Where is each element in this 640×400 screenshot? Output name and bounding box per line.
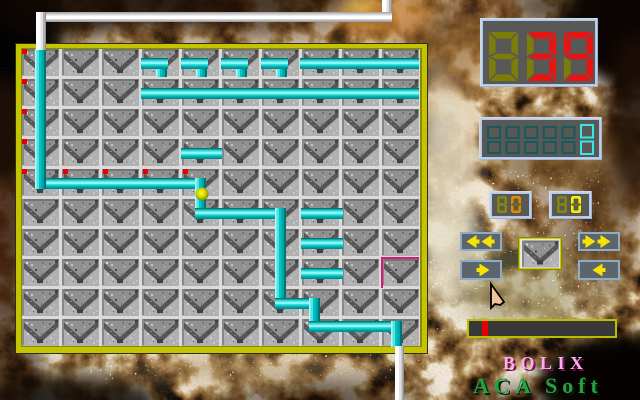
svg-text:ACA Soft: ACA Soft <box>473 373 603 398</box>
svg-text:BOLIX: BOLIX <box>503 353 589 373</box>
